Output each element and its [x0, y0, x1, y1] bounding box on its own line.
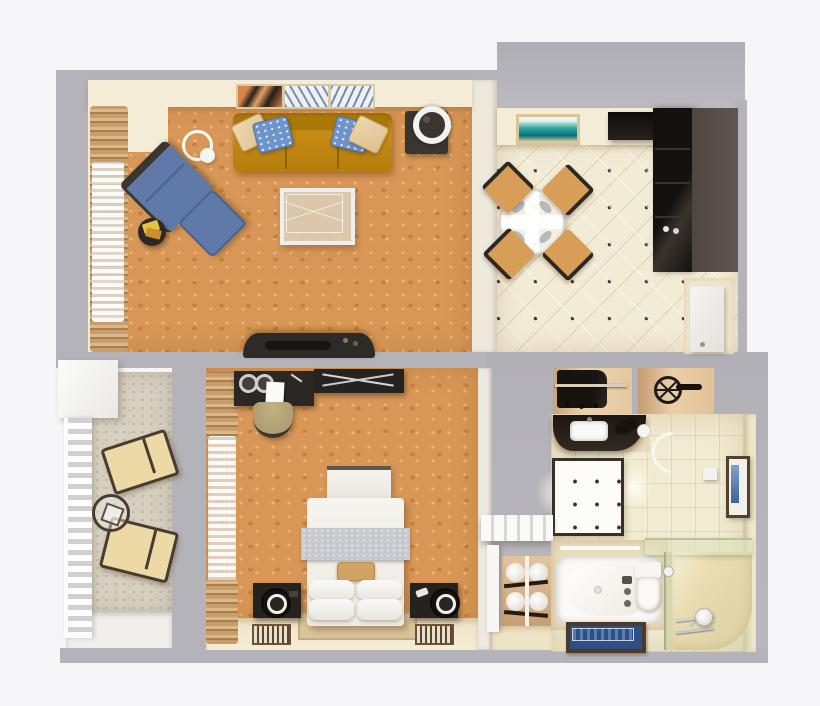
balcony-table — [92, 494, 130, 532]
floor-vent-right — [415, 624, 454, 645]
toilet — [634, 562, 662, 614]
coffee-table-glass-line-1 — [286, 194, 343, 233]
tv-console-knob-2 — [353, 341, 358, 346]
writing-desk — [234, 371, 314, 406]
nightstand-right-phone — [415, 587, 429, 598]
tv-console — [243, 333, 375, 358]
tv-console-knob-1 — [343, 338, 348, 343]
tv-console-slot — [265, 341, 331, 350]
bathroom-wall-art-print — [731, 465, 739, 503]
shower-door-knob — [663, 566, 674, 577]
kitchenette-shelf-line-3 — [655, 216, 690, 218]
tissue-box — [703, 468, 717, 480]
toilet-bowl — [636, 577, 660, 611]
shower-glass-sheen — [672, 552, 752, 650]
slatted-shelf — [481, 515, 553, 541]
towel-roll-1 — [506, 563, 525, 582]
bathtub-handle-2 — [624, 600, 631, 607]
closet-hanger-hook-3 — [593, 403, 598, 408]
kitchenette-glassware-1 — [663, 226, 669, 232]
wall-fan — [654, 376, 682, 404]
place-setting-2 — [537, 199, 553, 215]
wall-art-leaves-2 — [329, 84, 375, 109]
coffee-table — [280, 188, 355, 245]
kitchenette-shelf-line-2 — [655, 182, 690, 184]
wall-left — [56, 70, 88, 368]
wall-art-tiger — [236, 84, 284, 109]
bed-pillow-2 — [357, 580, 402, 600]
bath-mat-inner — [572, 628, 634, 641]
towel-niche — [502, 556, 553, 626]
toilet-tank — [635, 562, 661, 578]
vanity-cup — [637, 424, 651, 438]
floor-vent-left — [252, 624, 291, 645]
bed-runner — [301, 528, 410, 560]
bedroom-curtain-bottom — [206, 580, 238, 644]
bed-pillow-4 — [357, 599, 402, 620]
hall-door-leaf — [487, 545, 499, 632]
vanity-counter — [553, 415, 646, 451]
bed-pillow-1 — [309, 580, 354, 600]
bath-mat — [566, 622, 646, 653]
bathroom-wall-art — [726, 456, 750, 518]
end-table-lamp-finial — [423, 116, 430, 123]
kitchenette-counter-top — [608, 112, 655, 140]
nightstand-left-drawer — [289, 591, 298, 597]
bedroom-sheer-curtain — [208, 436, 236, 584]
wall-balcony-bedroom — [172, 368, 206, 658]
shower-head — [695, 608, 713, 626]
entry-door — [690, 286, 724, 352]
hair-dryer — [612, 416, 639, 438]
bathtub-faucet — [622, 576, 632, 584]
sun-lounger-2-fold — [145, 530, 158, 570]
balcony-cabinet — [58, 360, 118, 418]
bathtub-handle-1 — [624, 588, 631, 595]
sun-lounger-1-fold — [142, 438, 156, 473]
entry-door-handle — [700, 342, 705, 347]
nightstand-left-lamp-ring — [267, 594, 287, 614]
wall-divider-living-dining — [470, 80, 497, 352]
tub-shelf-line — [560, 546, 640, 550]
kitchenette-glassware-2 — [673, 228, 679, 234]
nightstand-right — [410, 583, 458, 618]
dresser — [314, 369, 404, 393]
towel-roll-3 — [506, 592, 525, 611]
kitchenette-tall-unit — [653, 108, 692, 272]
vanity-faucet — [587, 417, 592, 422]
floor-lamp-shade — [200, 148, 215, 163]
armchair-cushion-line — [145, 163, 185, 203]
place-setting-4 — [537, 229, 553, 245]
wall-top-right-block — [497, 42, 745, 112]
nightstand-left — [253, 583, 301, 618]
bed-accent-pillow — [337, 562, 375, 581]
closet-hanger-hook-2 — [579, 404, 584, 409]
bed-pillow-3 — [309, 599, 354, 620]
floor-plan — [0, 0, 820, 706]
end-table-lamp — [413, 106, 451, 144]
bed — [307, 498, 404, 626]
ceiling-light-panel — [552, 458, 624, 536]
hall-floor — [492, 626, 553, 650]
living-room-sheer-curtain — [92, 162, 124, 322]
nightstand-right-lamp-ring — [436, 594, 456, 614]
balcony-table-glass-cube — [100, 502, 124, 526]
closet-hanger-hook-1 — [565, 402, 570, 407]
towel-roll-4 — [529, 592, 548, 611]
kitchenette-side-panel — [692, 108, 738, 272]
bathtub-drain — [594, 586, 602, 594]
closet-rod — [555, 384, 627, 387]
vanity-sink — [570, 421, 608, 441]
fan-niche — [638, 368, 714, 414]
desk-pen — [291, 373, 303, 382]
kitchenette-shelf-line-1 — [655, 148, 690, 150]
closet-niche — [553, 368, 632, 414]
desk-notepad — [265, 382, 284, 404]
wall-art-leaves-1 — [283, 84, 330, 109]
balcony-railing — [64, 418, 92, 638]
towel-niche-mullion — [525, 556, 529, 626]
dining-wall-art-beach — [516, 114, 580, 145]
wall-fan-rod — [676, 384, 702, 390]
